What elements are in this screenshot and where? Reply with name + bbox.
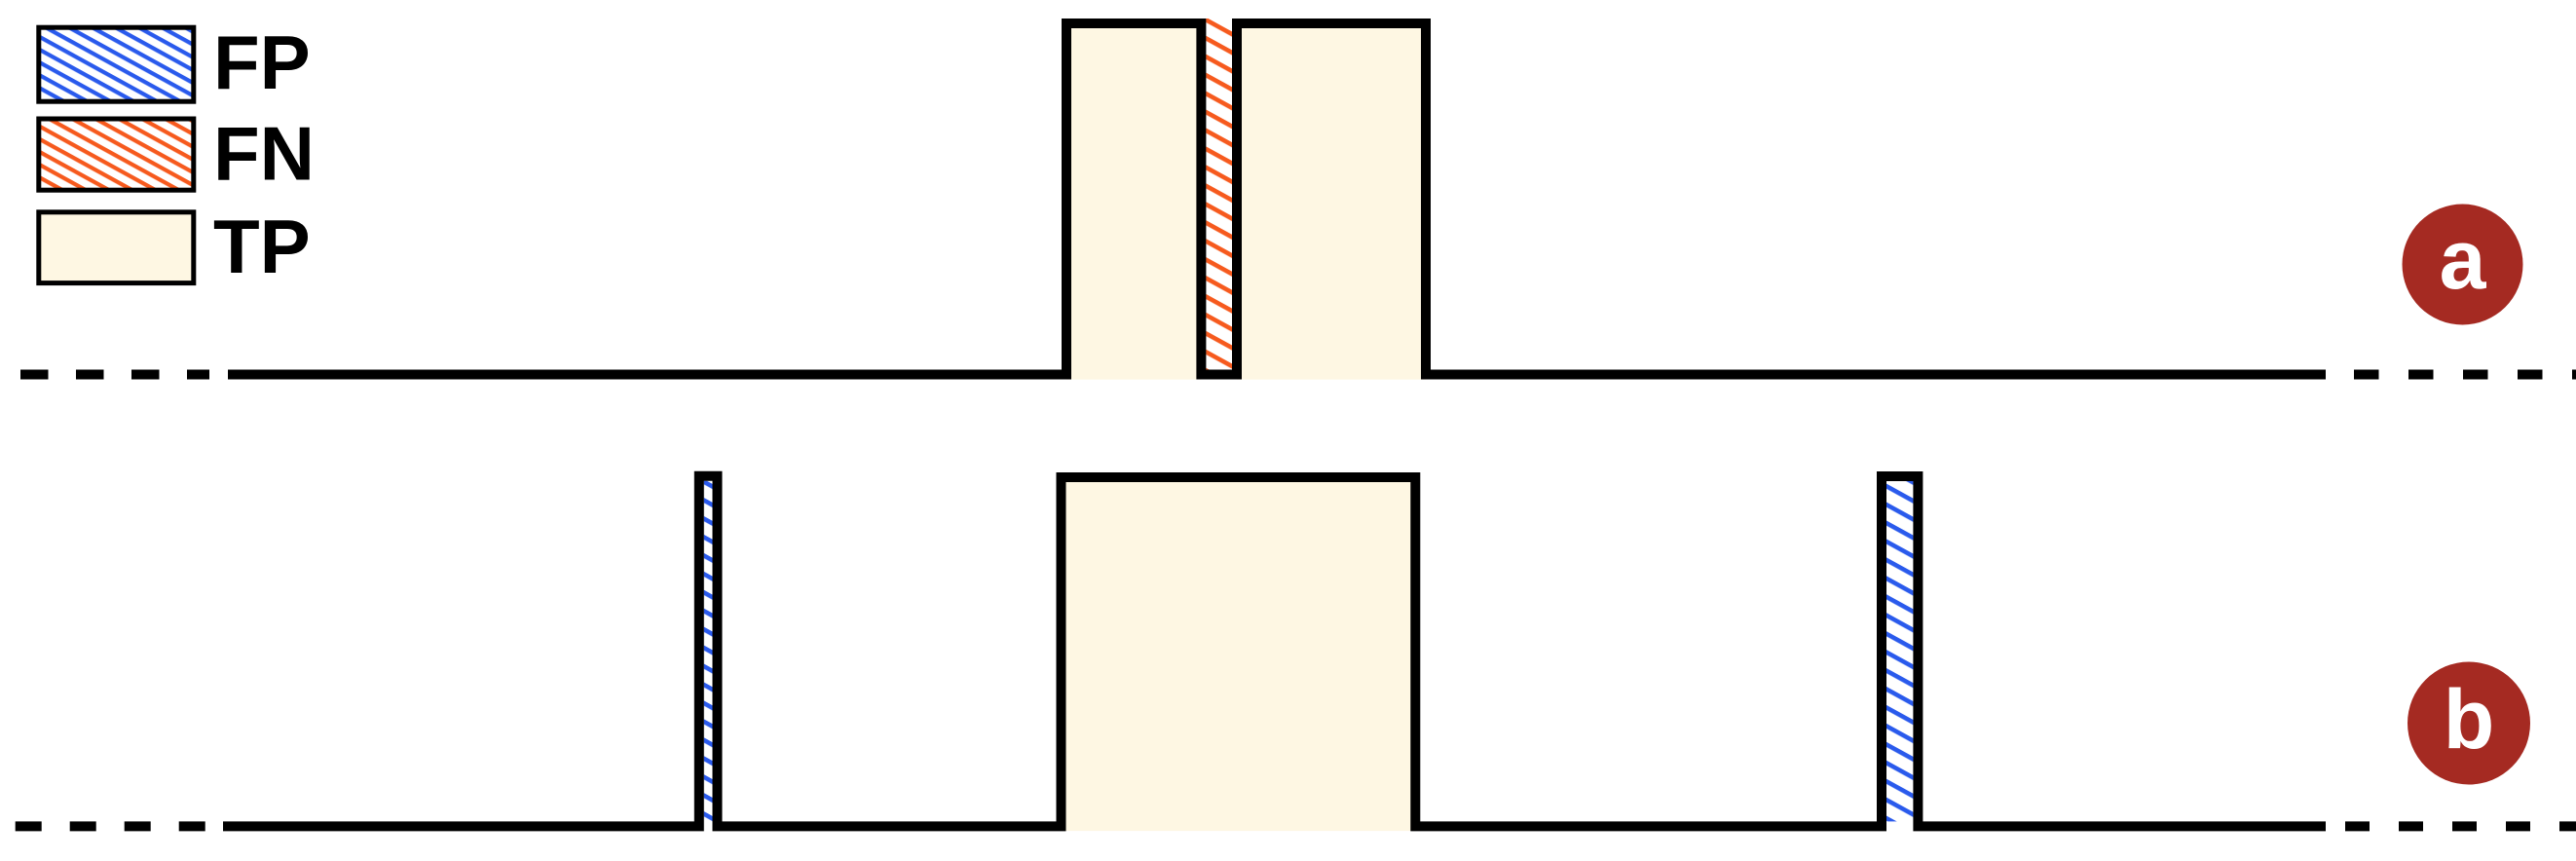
svg-text:TP: TP <box>213 204 311 289</box>
svg-text:FP: FP <box>213 19 311 105</box>
svg-text:FN: FN <box>213 111 315 197</box>
svg-text:b: b <box>2444 673 2495 767</box>
svg-text:a: a <box>2440 213 2487 307</box>
